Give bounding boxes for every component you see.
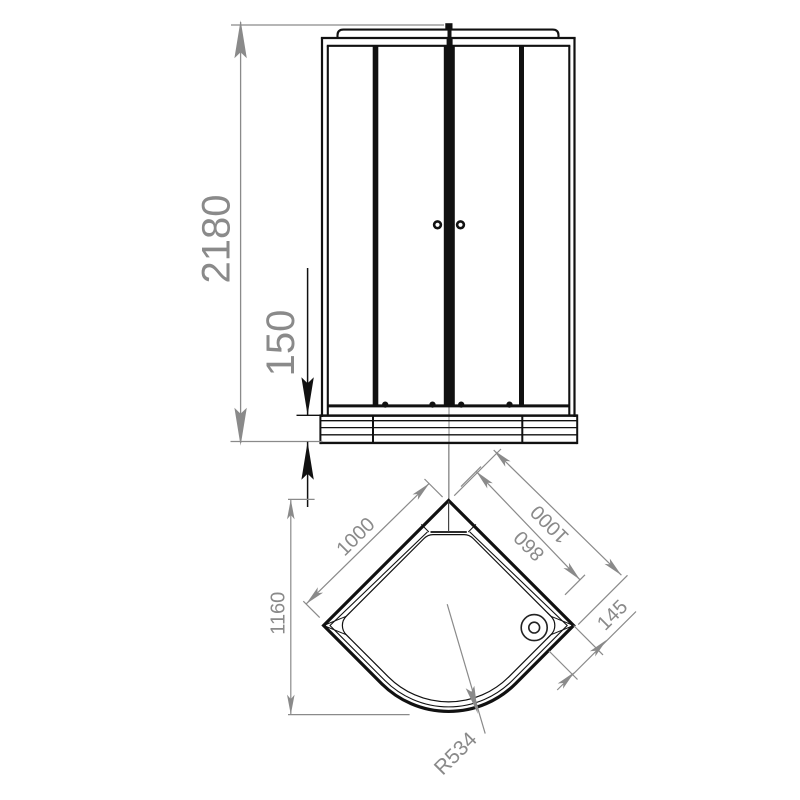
- svg-text:2180: 2180: [195, 195, 239, 284]
- svg-text:1160: 1160: [268, 592, 290, 635]
- svg-text:150: 150: [259, 310, 303, 377]
